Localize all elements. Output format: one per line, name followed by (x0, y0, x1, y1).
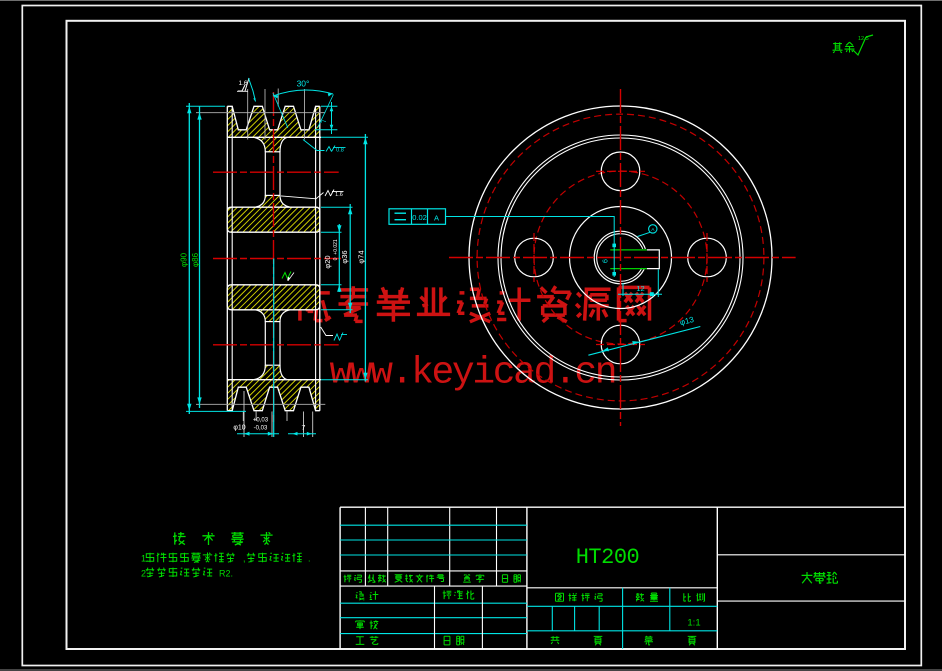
svg-text:1.6: 1.6 (335, 192, 343, 198)
svg-text:0.02: 0.02 (412, 213, 427, 222)
svg-text:-0,03: -0,03 (254, 426, 268, 432)
svg-text:HT200: HT200 (576, 545, 640, 570)
svg-text:φ90: φ90 (180, 252, 189, 267)
svg-text:R2.: R2. (219, 569, 233, 579)
svg-text:A: A (434, 214, 439, 223)
svg-text:0.8: 0.8 (336, 148, 344, 154)
svg-text:1:1: 1:1 (687, 618, 700, 629)
svg-text:12: 12 (636, 284, 644, 293)
svg-text:+0.021: +0.021 (333, 239, 339, 255)
svg-text:.: . (308, 554, 311, 564)
svg-text:0: 0 (333, 257, 339, 260)
svg-text:φ36: φ36 (340, 250, 349, 263)
svg-text:1.: 1. (141, 554, 149, 564)
svg-text:6: 6 (603, 259, 610, 263)
svg-text:7: 7 (302, 425, 306, 432)
svg-text:+0,03: +0,03 (253, 418, 269, 424)
svg-text:φ86: φ86 (191, 252, 200, 267)
svg-text:φ10: φ10 (233, 425, 245, 432)
svg-text:www.keyicad.cn: www.keyicad.cn (330, 352, 616, 395)
svg-text:φ20: φ20 (323, 255, 332, 268)
svg-text:,: , (243, 554, 246, 564)
svg-text:30°: 30° (297, 79, 310, 89)
svg-text:φ74: φ74 (357, 250, 366, 263)
